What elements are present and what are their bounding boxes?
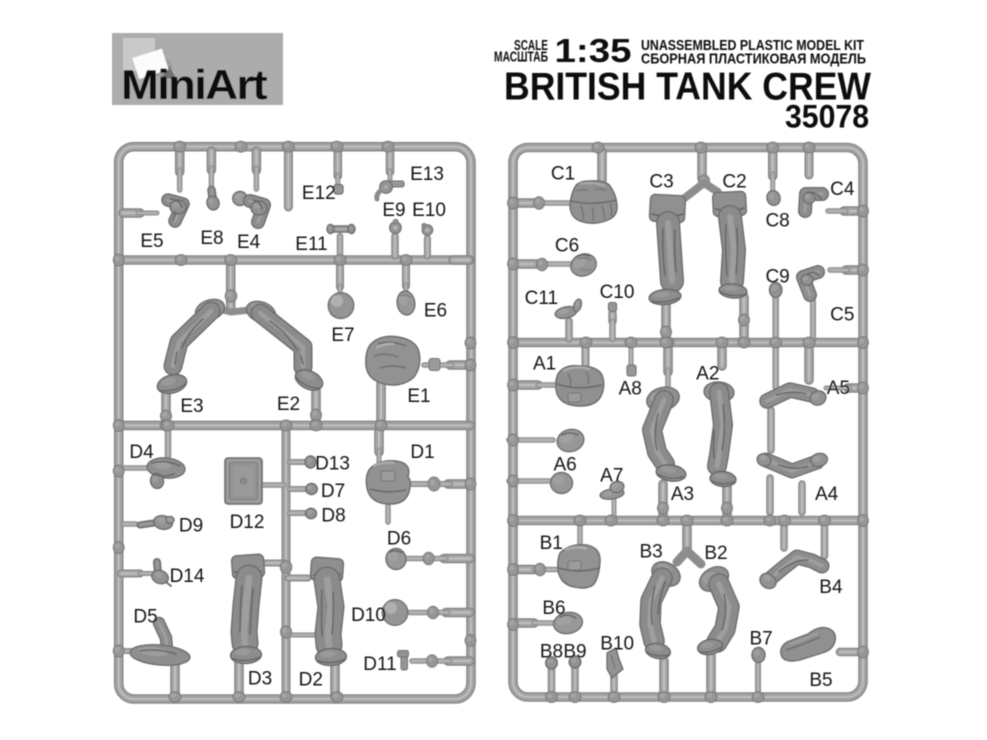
svg-text:C10: C10 xyxy=(600,282,635,303)
svg-text:E2: E2 xyxy=(277,394,300,415)
svg-text:A1: A1 xyxy=(533,353,556,374)
svg-text:C8: C8 xyxy=(765,211,789,232)
svg-text:D2: D2 xyxy=(299,670,323,691)
svg-text:C5: C5 xyxy=(830,304,854,325)
svg-text:1:35: 1:35 xyxy=(555,33,632,70)
svg-text:C4: C4 xyxy=(830,179,855,200)
svg-text:D5: D5 xyxy=(133,606,157,627)
svg-text:C6: C6 xyxy=(555,236,579,257)
svg-text:A3: A3 xyxy=(671,484,694,505)
svg-text:A6: A6 xyxy=(553,455,576,476)
svg-text:C2: C2 xyxy=(722,172,746,193)
svg-text:B5: B5 xyxy=(809,670,832,691)
svg-text:B8: B8 xyxy=(540,642,563,663)
svg-text:B3: B3 xyxy=(639,542,662,563)
svg-text:D13: D13 xyxy=(315,454,350,475)
svg-text:D8: D8 xyxy=(321,506,345,527)
svg-text:A5: A5 xyxy=(827,378,850,399)
svg-text:B6: B6 xyxy=(542,598,565,619)
svg-text:A8: A8 xyxy=(619,378,642,399)
svg-text:C3: C3 xyxy=(649,172,673,193)
svg-text:МАСШТАБ: МАСШТАБ xyxy=(494,50,548,66)
svg-text:B1: B1 xyxy=(540,533,563,554)
svg-text:E12: E12 xyxy=(302,183,336,204)
svg-text:D1: D1 xyxy=(410,442,434,463)
svg-text:E6: E6 xyxy=(424,301,447,322)
svg-text:A7: A7 xyxy=(600,465,623,486)
svg-text:D11: D11 xyxy=(363,654,396,675)
svg-text:B9: B9 xyxy=(563,642,586,663)
svg-text:D9: D9 xyxy=(179,516,203,537)
svg-text:D14: D14 xyxy=(170,566,205,587)
svg-text:D4: D4 xyxy=(129,442,154,463)
svg-text:E4: E4 xyxy=(237,232,261,253)
svg-text:B4: B4 xyxy=(819,577,843,598)
svg-text:A4: A4 xyxy=(815,484,839,505)
svg-text:E10: E10 xyxy=(412,200,446,221)
svg-text:D10: D10 xyxy=(351,605,386,626)
svg-text:E11: E11 xyxy=(295,234,327,255)
svg-text:E9: E9 xyxy=(382,200,405,221)
svg-text:A2: A2 xyxy=(696,363,719,384)
svg-text:C9: C9 xyxy=(765,266,789,287)
svg-text:D6: D6 xyxy=(387,529,411,550)
svg-text:E8: E8 xyxy=(200,228,223,249)
svg-text:C1: C1 xyxy=(551,164,575,185)
svg-text:E13: E13 xyxy=(410,164,444,185)
svg-text:D7: D7 xyxy=(321,481,345,502)
svg-text:E7: E7 xyxy=(331,325,354,346)
svg-text:C11: C11 xyxy=(525,288,558,309)
svg-text:E3: E3 xyxy=(180,396,203,417)
svg-text:MiniArt: MiniArt xyxy=(121,61,268,108)
svg-text:E1: E1 xyxy=(407,386,430,407)
svg-text:35078: 35078 xyxy=(785,99,869,135)
svg-text:E5: E5 xyxy=(140,231,163,252)
svg-text:B7: B7 xyxy=(749,628,772,649)
svg-text:D3: D3 xyxy=(248,669,272,690)
svg-text:B10: B10 xyxy=(600,633,634,654)
svg-text:D12: D12 xyxy=(230,512,265,533)
svg-text:B2: B2 xyxy=(704,543,727,564)
